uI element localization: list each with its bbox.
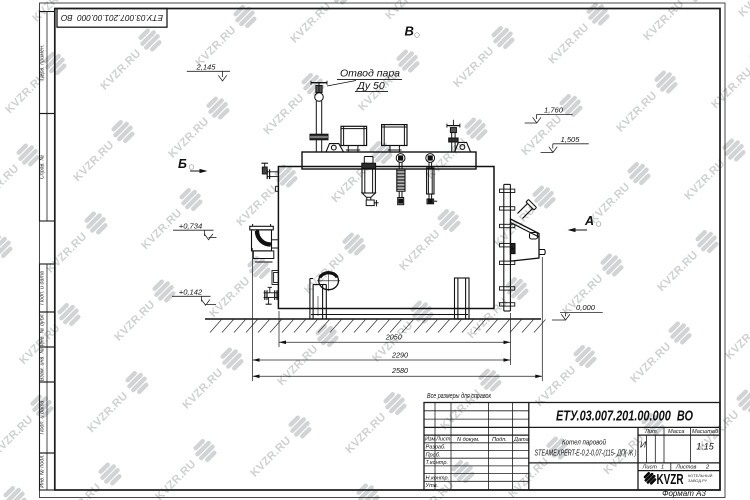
svg-text:ЕТУ.03.007.201.00.000 ВО: ЕТУ.03.007.201.00.000 ВО bbox=[556, 409, 694, 425]
svg-text:+0,142: +0,142 bbox=[179, 288, 203, 297]
svg-text:Лит.: Лит. bbox=[644, 429, 658, 435]
svg-text:Отвод пара: Отвод пара bbox=[340, 68, 400, 80]
svg-text:Разраб.: Разраб. bbox=[426, 445, 446, 451]
svg-text:Ду 50: Ду 50 bbox=[356, 80, 385, 92]
svg-text:Все размеры для справок: Все размеры для справок bbox=[427, 391, 491, 400]
svg-text:Утв.: Утв. bbox=[425, 483, 439, 489]
svg-text:Справ. №: Справ. № bbox=[39, 155, 45, 180]
svg-text:0,000: 0,000 bbox=[576, 303, 596, 312]
svg-text:Изм: Изм bbox=[425, 437, 436, 443]
svg-text:N докум.: N докум. bbox=[457, 437, 480, 443]
svg-text:Инв. № дубл.: Инв. № дубл. bbox=[39, 313, 45, 346]
svg-text:В: В bbox=[405, 24, 414, 39]
svg-text:2050: 2050 bbox=[385, 333, 402, 342]
svg-text:1,760: 1,760 bbox=[544, 105, 564, 114]
svg-text:Б: Б bbox=[178, 157, 187, 171]
svg-text:2580: 2580 bbox=[391, 366, 408, 375]
svg-text:Подп. и дата: Подп. и дата bbox=[39, 271, 45, 305]
svg-text:Лист: Лист bbox=[642, 465, 658, 471]
svg-text:А: А bbox=[584, 214, 594, 228]
svg-text:Н.контр.: Н.контр. bbox=[426, 476, 450, 482]
svg-text:Перв. примен.: Перв. примен. bbox=[39, 45, 45, 81]
svg-text:1: 1 bbox=[661, 465, 664, 471]
svg-text:Инв. № подл.: Инв. № подл. bbox=[39, 454, 45, 487]
svg-text:2290: 2290 bbox=[391, 350, 408, 359]
svg-text:Проб.: Проб. bbox=[426, 452, 441, 458]
svg-text:И: И bbox=[640, 440, 647, 450]
svg-text:Взам. инв. №: Взам. инв. № bbox=[39, 348, 45, 382]
svg-text:Подп.: Подп. bbox=[492, 437, 507, 443]
svg-text:Подп. и дата: Подп. и дата bbox=[39, 401, 45, 435]
svg-text:Масштаб: Масштаб bbox=[692, 429, 719, 435]
svg-text:Котел паровой: Котел паровой bbox=[562, 438, 607, 447]
svg-text:2: 2 bbox=[705, 465, 710, 471]
svg-text:Лист: Лист bbox=[435, 437, 451, 443]
svg-text:ЕТУ.03.007.201.00.000 ВО: ЕТУ.03.007.201.00.000 ВО bbox=[61, 13, 163, 23]
svg-text:STEAMEXPERT-E-0,2-0,07-(115- Д: STEAMEXPERT-E-0,2-0,07-(115- ДП( Ж ) bbox=[535, 449, 637, 458]
svg-text:ЗАВОД.РУ: ЗАВОД.РУ bbox=[688, 478, 708, 483]
svg-text:1:15: 1:15 bbox=[696, 442, 715, 452]
svg-text:1,505: 1,505 bbox=[560, 135, 580, 144]
svg-text:+0,734: +0,734 bbox=[179, 221, 202, 230]
svg-text:Масса: Масса bbox=[668, 429, 685, 435]
svg-text:Формат А3: Формат А3 bbox=[662, 489, 706, 498]
svg-text:Т.контр.: Т.контр. bbox=[426, 460, 449, 466]
svg-text:Листов: Листов bbox=[675, 465, 696, 471]
svg-text:KVZR: KVZR bbox=[657, 471, 684, 488]
svg-text:Дата: Дата bbox=[513, 437, 529, 443]
svg-text:2,145: 2,145 bbox=[195, 62, 216, 71]
